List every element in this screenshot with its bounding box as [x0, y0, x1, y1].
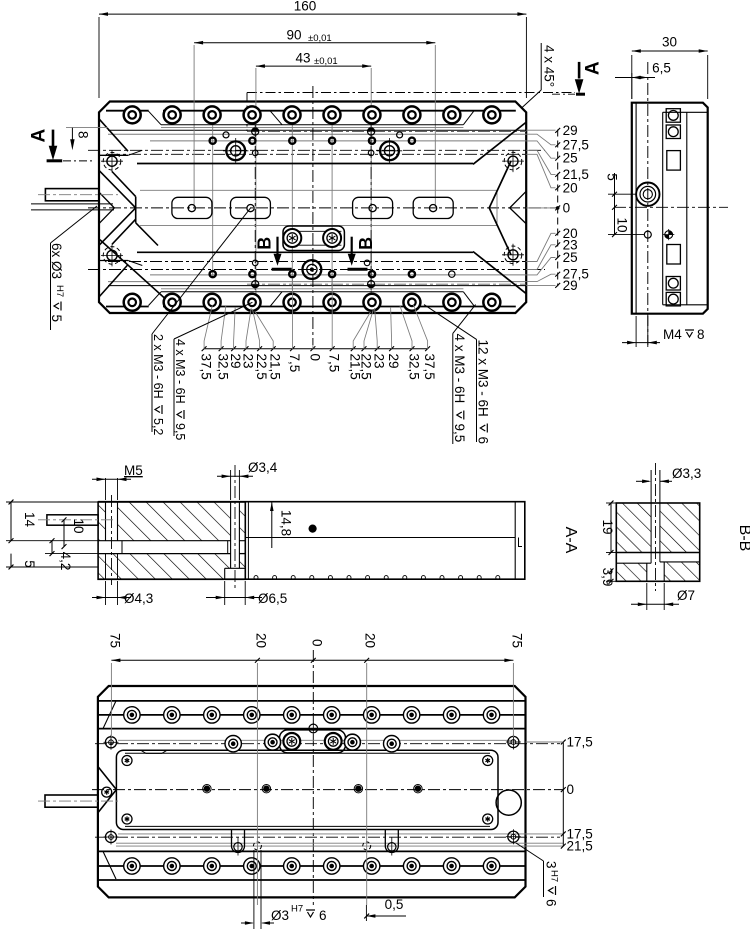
svg-text:25: 25 — [563, 250, 578, 265]
svg-text:H7: H7 — [291, 904, 303, 915]
svg-text:4 x 45°: 4 x 45° — [542, 45, 557, 87]
svg-text:32,5: 32,5 — [407, 354, 422, 380]
svg-text:H7: H7 — [54, 285, 65, 297]
svg-text:29: 29 — [386, 354, 401, 369]
svg-text:10: 10 — [615, 217, 630, 232]
svg-text:8: 8 — [76, 131, 91, 139]
svg-text:22,5: 22,5 — [254, 354, 269, 380]
svg-text:4,2: 4,2 — [58, 552, 73, 571]
svg-text:7,5: 7,5 — [327, 354, 342, 373]
svg-text:3: 3 — [544, 861, 559, 869]
svg-text:B-B: B-B — [736, 525, 750, 552]
svg-text:M4: M4 — [663, 327, 682, 342]
svg-text:43: 43 — [295, 51, 310, 66]
svg-text:23: 23 — [372, 354, 387, 369]
svg-text:22,5: 22,5 — [359, 354, 374, 380]
svg-text:23: 23 — [241, 354, 256, 369]
svg-text:A: A — [29, 128, 50, 142]
svg-text:29: 29 — [563, 278, 578, 293]
svg-text:6x Ø3: 6x Ø3 — [49, 243, 64, 279]
svg-text:4 x M3 - 6H: 4 x M3 - 6H — [173, 339, 187, 404]
svg-text:3,9: 3,9 — [600, 568, 615, 587]
svg-text:90: 90 — [286, 27, 301, 42]
svg-text:160: 160 — [294, 0, 317, 14]
svg-text:14: 14 — [22, 512, 37, 528]
svg-text:6,5: 6,5 — [652, 61, 671, 76]
svg-text:20: 20 — [363, 633, 378, 648]
svg-text:14,8: 14,8 — [279, 510, 294, 536]
svg-text:0,5: 0,5 — [385, 897, 404, 912]
svg-text:±0,01: ±0,01 — [314, 56, 338, 67]
svg-text:Ø4,3: Ø4,3 — [124, 591, 153, 606]
svg-text:75: 75 — [107, 633, 122, 648]
svg-text:B: B — [255, 237, 275, 250]
svg-text:±0,01: ±0,01 — [308, 33, 332, 44]
svg-text:20: 20 — [253, 633, 268, 648]
svg-text:0: 0 — [307, 354, 322, 362]
svg-text:10: 10 — [71, 518, 86, 533]
svg-text:0: 0 — [567, 782, 575, 797]
svg-text:4 x M3 - 6H: 4 x M3 - 6H — [452, 334, 467, 404]
svg-text:21,5: 21,5 — [567, 839, 593, 854]
svg-text:9,5: 9,5 — [173, 423, 187, 440]
svg-text:B: B — [356, 237, 376, 250]
svg-text:37,5: 37,5 — [199, 354, 214, 380]
svg-text:21,5: 21,5 — [268, 354, 283, 380]
svg-text:A: A — [583, 61, 604, 75]
svg-text:2 x M3 - 6H: 2 x M3 - 6H — [151, 334, 165, 399]
svg-text:75: 75 — [509, 633, 524, 648]
svg-text:M5: M5 — [124, 463, 143, 478]
svg-text:29: 29 — [563, 123, 578, 138]
svg-text:0: 0 — [309, 639, 324, 647]
svg-text:7,5: 7,5 — [287, 354, 302, 373]
svg-text:A-A: A-A — [562, 527, 579, 554]
svg-text:Ø3,4: Ø3,4 — [248, 460, 278, 475]
svg-text:30: 30 — [662, 35, 677, 50]
svg-text:Ø3: Ø3 — [271, 908, 289, 923]
svg-text:H7: H7 — [549, 870, 560, 882]
svg-text:5: 5 — [605, 173, 620, 181]
svg-text:25: 25 — [563, 151, 578, 166]
svg-text:6: 6 — [319, 908, 327, 923]
svg-text:6: 6 — [475, 437, 490, 445]
svg-text:Ø7: Ø7 — [677, 588, 695, 603]
svg-text:5: 5 — [22, 560, 37, 568]
svg-text:6: 6 — [544, 899, 559, 907]
svg-text:0: 0 — [563, 200, 571, 215]
svg-text:37,5: 37,5 — [422, 354, 437, 380]
svg-text:12 x M3 - 6H: 12 x M3 - 6H — [475, 340, 490, 417]
svg-text:Ø6,5: Ø6,5 — [258, 591, 287, 606]
svg-text:9,5: 9,5 — [452, 424, 467, 443]
svg-text:5: 5 — [49, 315, 64, 323]
svg-text:20: 20 — [563, 180, 578, 195]
svg-text:17,5: 17,5 — [567, 735, 593, 750]
svg-text:5,2: 5,2 — [151, 418, 165, 435]
svg-text:Ø3,3: Ø3,3 — [672, 466, 701, 481]
svg-text:19: 19 — [600, 519, 615, 534]
svg-text:8: 8 — [697, 327, 705, 342]
